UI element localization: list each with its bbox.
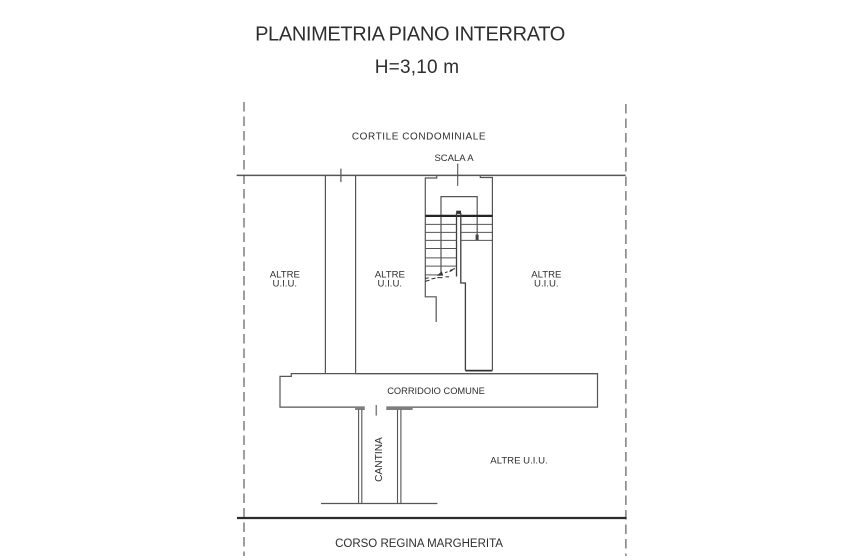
- svg-text:H=3,10 m: H=3,10 m: [375, 57, 460, 78]
- svg-text:ALTRE U.I.U.: ALTRE U.I.U.: [490, 455, 547, 466]
- svg-text:CORSO REGINA MARGHERITA: CORSO REGINA MARGHERITA: [335, 538, 503, 550]
- svg-text:CORTILE CONDOMINIALE: CORTILE CONDOMINIALE: [352, 132, 486, 143]
- svg-text:PLANIMETRIA PIANO INTERRATO: PLANIMETRIA PIANO INTERRATO: [255, 24, 565, 46]
- svg-text:CANTINA: CANTINA: [374, 437, 385, 482]
- svg-text:SCALA A: SCALA A: [434, 153, 474, 164]
- svg-text:U.I.U.: U.I.U.: [378, 279, 403, 290]
- svg-text:U.I.U.: U.I.U.: [534, 279, 559, 290]
- svg-text:CORRIDOIO COMUNE: CORRIDOIO COMUNE: [387, 386, 485, 396]
- svg-text:U.I.U.: U.I.U.: [273, 279, 298, 290]
